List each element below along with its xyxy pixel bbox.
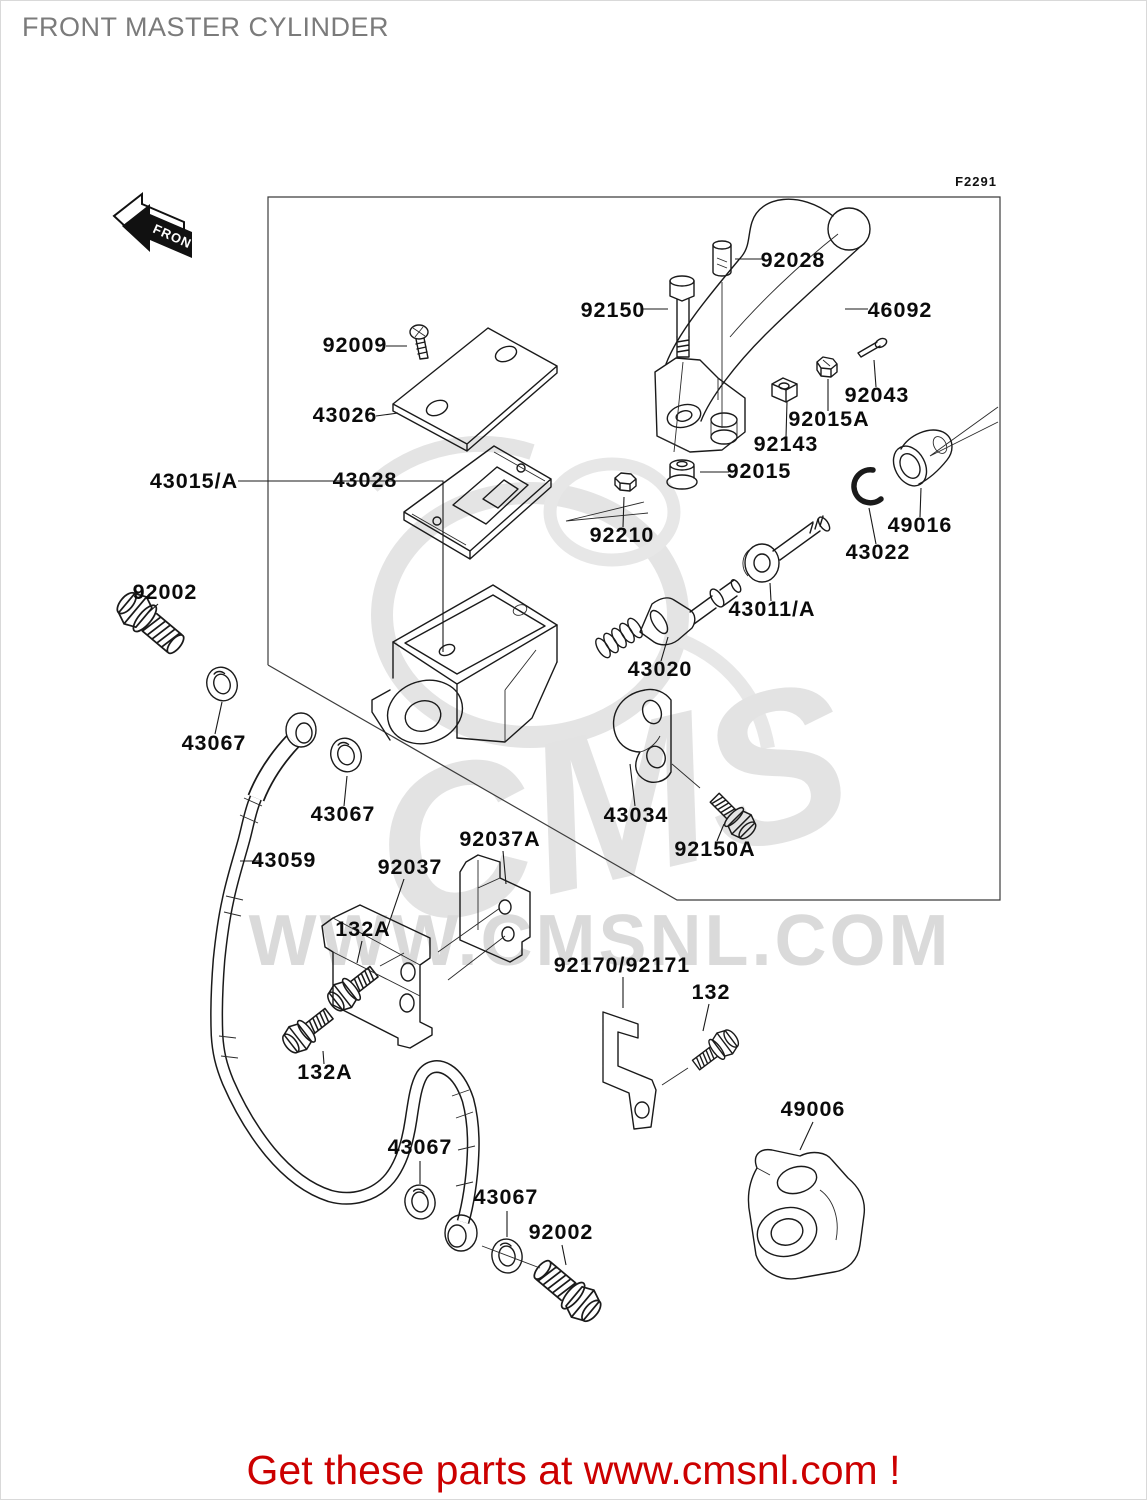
- part-label-92170-92171: 92170/92171: [554, 953, 691, 977]
- part-label-43067-4: 43067: [474, 1185, 539, 1209]
- exploded-parts-drawing: CMS WWW.CMSNL.COM FRONT F2291: [0, 0, 1147, 1500]
- part-label-92002-upper: 92002: [133, 580, 198, 604]
- promo-banner: Get these parts at www.cmsnl.com !: [0, 1447, 1147, 1494]
- part-label-92210: 92210: [590, 523, 655, 547]
- parts-diagram-page: FRONT MASTER CYLINDER CMS WWW.CMSNL.COM …: [0, 0, 1147, 1500]
- part-label-43028: 43028: [333, 468, 398, 492]
- part-label-43059: 43059: [252, 848, 317, 872]
- part-label-49016: 49016: [888, 513, 953, 537]
- part-collar: [772, 378, 797, 402]
- part-washer-1: [202, 663, 242, 705]
- part-bracket-bolt-132: [688, 1025, 743, 1075]
- part-label-92015: 92015: [727, 459, 792, 483]
- part-label-92150a: 92150A: [674, 837, 755, 861]
- part-label-43026: 43026: [313, 403, 378, 427]
- part-label-92150: 92150: [581, 298, 646, 322]
- part-label-92143: 92143: [754, 432, 819, 456]
- part-label-132a-upper: 132A: [335, 917, 390, 941]
- part-washer-3: [402, 1182, 438, 1221]
- part-cap-screw: [410, 325, 428, 359]
- part-clamp-bracket: [603, 1012, 656, 1129]
- part-bracket-bolt-132a-lower: [278, 1002, 338, 1058]
- part-label-43067-1: 43067: [182, 731, 247, 755]
- part-nut-92210: [615, 473, 636, 491]
- part-hose-clamp: [748, 1150, 864, 1279]
- part-label-43020: 43020: [628, 657, 693, 681]
- part-washer-4: [489, 1236, 525, 1275]
- figure-code: F2291: [955, 174, 997, 189]
- part-label-43011a: 43011/A: [728, 597, 815, 621]
- front-arrow-icon: FRONT: [114, 194, 202, 258]
- part-label-46092: 46092: [868, 298, 933, 322]
- part-label-132: 132: [692, 980, 731, 1004]
- part-circlip: [854, 470, 881, 503]
- part-cotter-pin: [858, 337, 888, 357]
- part-brake-lever: [666, 199, 870, 421]
- part-label-92028: 92028: [761, 248, 826, 272]
- part-locknut-small: [817, 357, 837, 377]
- part-label-43067-2: 43067: [311, 802, 376, 826]
- part-label-92002-lower: 92002: [529, 1220, 594, 1244]
- part-label-92015a: 92015A: [788, 407, 869, 431]
- part-label-92009: 92009: [323, 333, 388, 357]
- part-banjo-bolt-lower: [527, 1253, 607, 1328]
- part-boot: [887, 430, 952, 491]
- part-label-92037a: 92037A: [459, 827, 540, 851]
- part-label-92043: 92043: [845, 383, 910, 407]
- part-label-49006: 49006: [781, 1097, 846, 1121]
- part-push-rod: [743, 515, 832, 582]
- part-label-43022: 43022: [846, 540, 911, 564]
- part-label-132a-lower: 132A: [297, 1060, 352, 1084]
- part-pivot-bolt: [670, 276, 694, 357]
- part-label-43067-3: 43067: [388, 1135, 453, 1159]
- part-label-43034: 43034: [604, 803, 669, 827]
- part-label-92037: 92037: [378, 855, 443, 879]
- part-label-43015a: 43015/A: [150, 469, 238, 493]
- part-pivot-pin: [713, 241, 731, 276]
